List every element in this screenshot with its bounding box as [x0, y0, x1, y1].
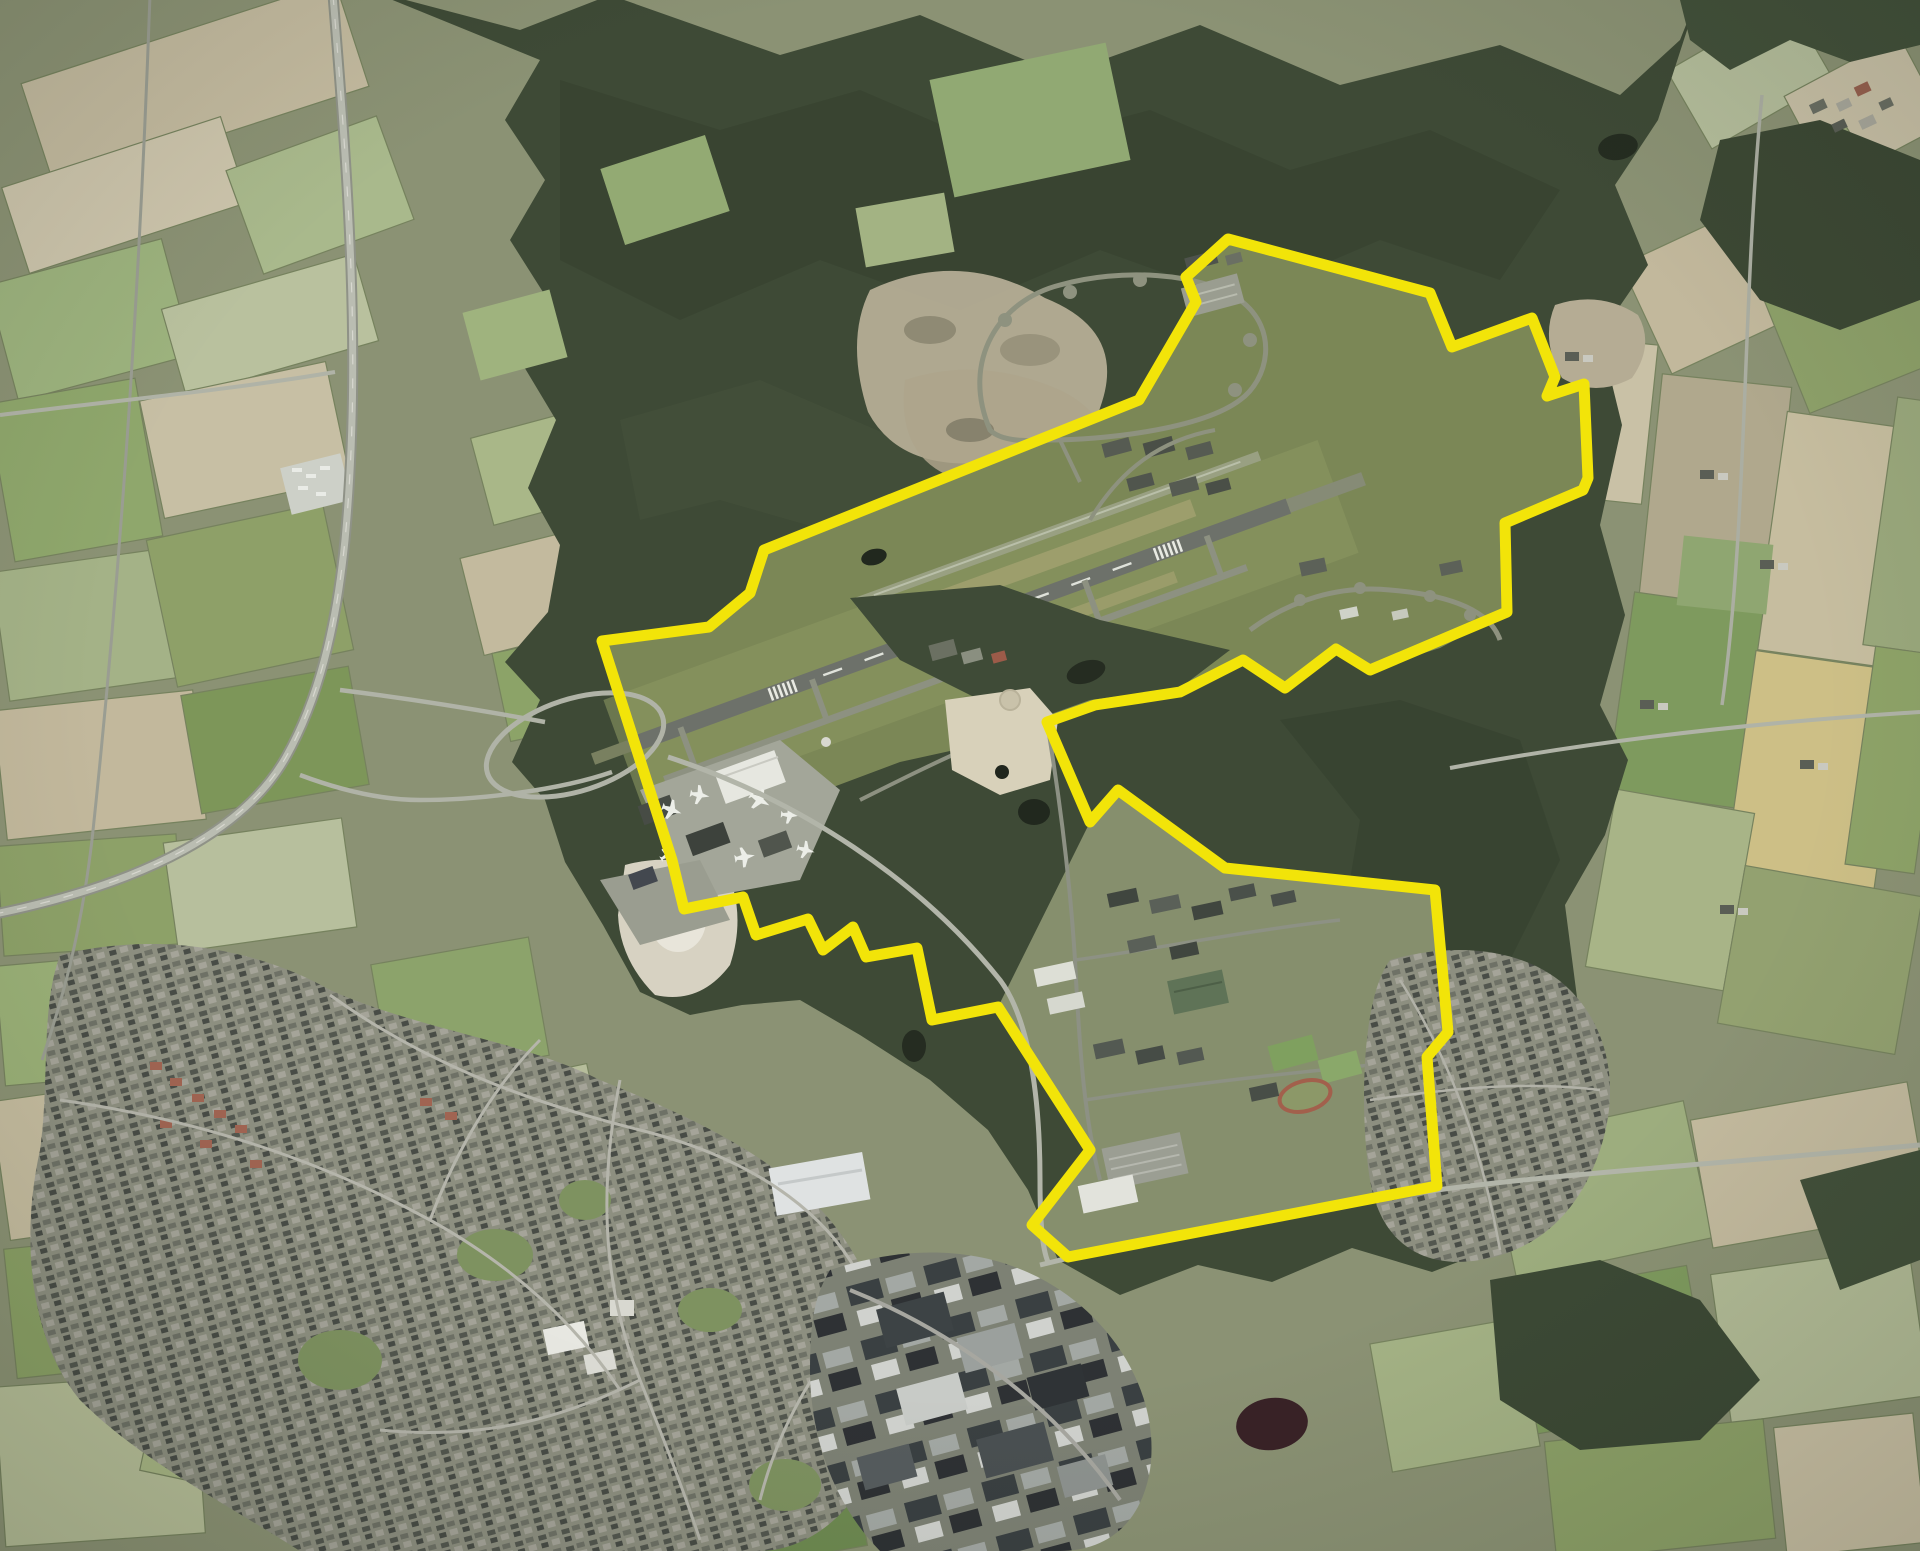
vignette — [0, 0, 1920, 1551]
aerial-photo-canvas — [0, 0, 1920, 1551]
aerial-screenshot — [0, 0, 1920, 1551]
